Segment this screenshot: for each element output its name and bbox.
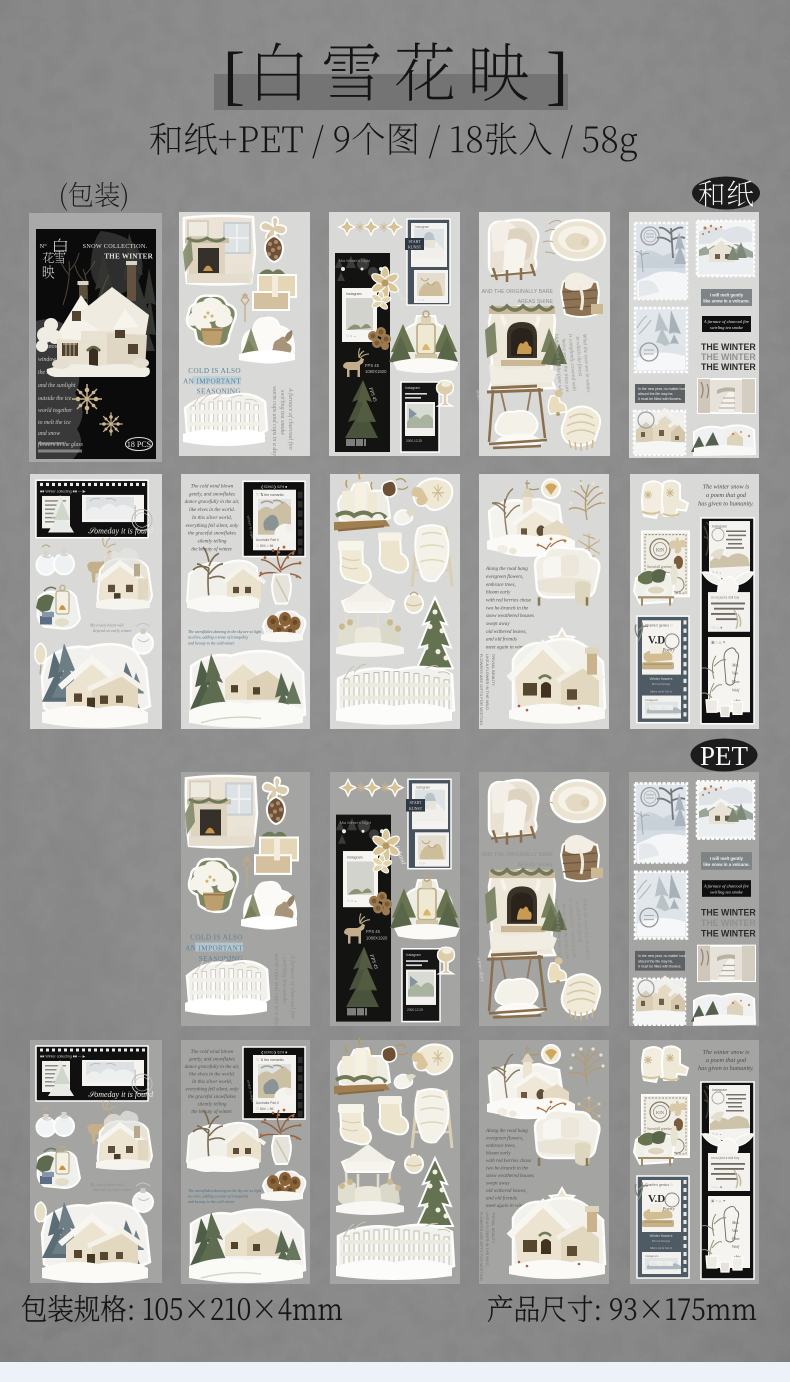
svg-text:]: ] (546, 39, 568, 112)
svg-text:[: [ (223, 39, 245, 112)
svg-text:world together: world together (38, 408, 73, 414)
svg-text:and snow: and snow (38, 431, 60, 437)
svg-text:THE WINTER: THE WINTER (104, 253, 153, 261)
svg-text:18 PCS: 18 PCS (127, 440, 151, 449)
svg-text:SNOW COLLECTION.: SNOW COLLECTION. (83, 243, 148, 250)
svg-text:PET: PET (700, 741, 749, 771)
svg-text:to melt the ice: to melt the ice (38, 420, 71, 426)
svg-text:N°: N° (40, 243, 48, 250)
svg-text:outside the ice: outside the ice (38, 396, 72, 402)
svg-text:and the sunlight: and the sunlight (38, 383, 76, 389)
